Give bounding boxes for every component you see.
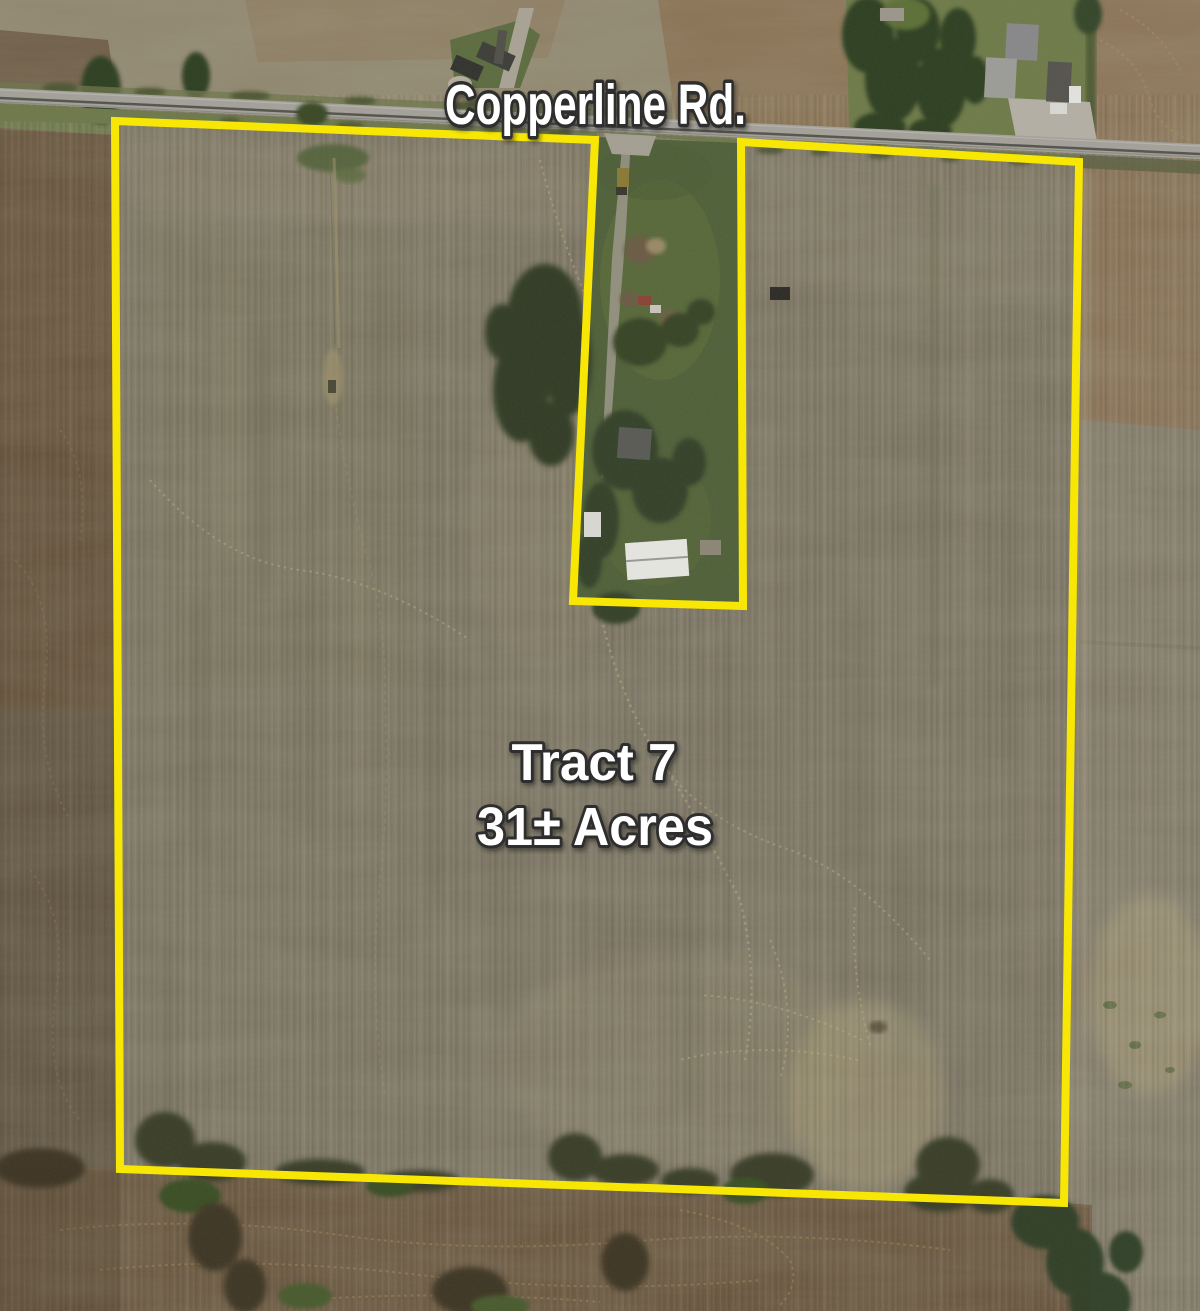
svg-text:31± Acres: 31± Acres <box>477 797 713 857</box>
svg-text:Tract 7: Tract 7 <box>512 734 677 792</box>
svg-text:Copperline Rd.: Copperline Rd. <box>445 73 746 137</box>
